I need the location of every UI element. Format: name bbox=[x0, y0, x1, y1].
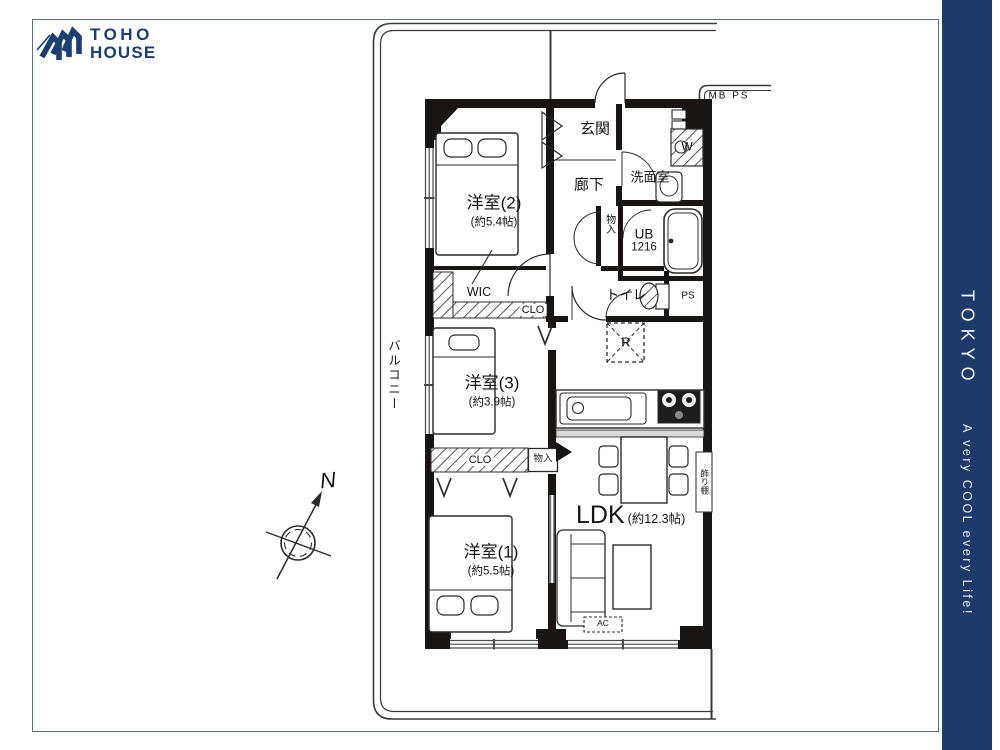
mid-storage-label: 物入 bbox=[533, 455, 552, 466]
bedroom1-label: 洋室(1) (約5.5帖) bbox=[464, 538, 519, 579]
shelf-label: 飾り棚 bbox=[699, 469, 709, 495]
toilet-label: トイレ bbox=[606, 287, 647, 302]
compass-icon bbox=[266, 491, 331, 579]
ldk-size: (約12.3帖) bbox=[628, 508, 686, 527]
wic-label: WIC bbox=[467, 285, 491, 299]
unit-bath-label: UB 1216 bbox=[631, 227, 657, 254]
bedroom1-name: 洋室(1) bbox=[464, 538, 519, 563]
hall-storage-label: 物入 bbox=[603, 214, 614, 234]
bedroom3-label: 洋室(3) (約3.9帖) bbox=[465, 369, 520, 410]
bedroom1-size: (約5.5帖) bbox=[464, 563, 519, 579]
bedroom2-label: 洋室(2) (約5.4帖) bbox=[467, 189, 522, 230]
washer-mark-label: W bbox=[681, 140, 692, 153]
corridor-label: 廊下 bbox=[574, 178, 604, 195]
ac-label: AC bbox=[597, 619, 609, 629]
unit-bath-size: 1216 bbox=[631, 242, 657, 254]
bedroom2-name: 洋室(2) bbox=[467, 189, 522, 214]
closet-lower-label: CLO bbox=[467, 454, 494, 466]
floorplan-page: TOHO HOUSE TOKYO A very COOL every Life! bbox=[0, 0, 1000, 750]
bedroom2-size: (約5.4帖) bbox=[467, 214, 522, 230]
meter-box-label: MB PS bbox=[708, 90, 749, 101]
entrance-label: 玄関 bbox=[580, 122, 610, 139]
washroom-label: 洗面室 bbox=[630, 171, 669, 186]
pipe-space-label: PS bbox=[681, 290, 694, 301]
balcony-label: バルコニー bbox=[386, 339, 400, 412]
fridge-mark-label: R bbox=[621, 336, 630, 351]
bedroom3-size: (約3.9帖) bbox=[465, 394, 520, 410]
bedroom3-name: 洋室(3) bbox=[465, 369, 520, 394]
ldk-name: LDK bbox=[576, 501, 625, 530]
closet-upper-label: CLO bbox=[520, 304, 547, 316]
unit-bath-name: UB bbox=[631, 227, 657, 242]
ldk-label: LDK (約12.3帖) bbox=[576, 501, 685, 530]
north-label: N bbox=[319, 468, 337, 494]
